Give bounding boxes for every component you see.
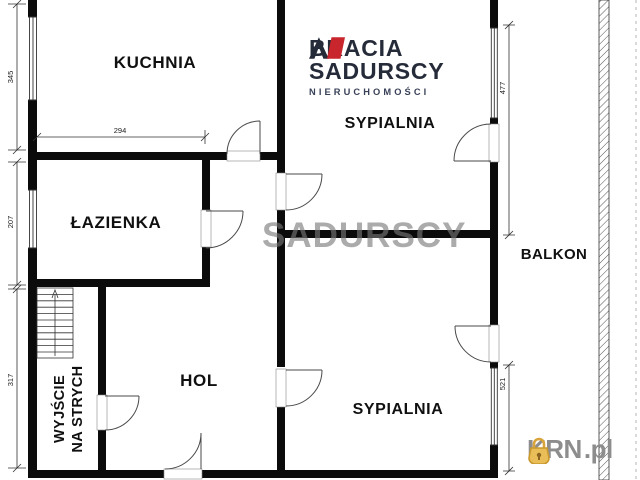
door-bedroom2 [286, 370, 322, 406]
wall-kitchen-bottom [28, 152, 227, 160]
wall-left [28, 0, 37, 17]
door-frame [201, 210, 211, 247]
door-frame [227, 151, 260, 161]
krn-logo: KRN .pl [527, 436, 613, 462]
dimension-label-317: 317 [6, 374, 15, 387]
wall-left [28, 100, 37, 190]
door-frame [97, 395, 107, 430]
agency-logo-line2: SADURSCY [309, 60, 459, 83]
balcony-hatch [599, 0, 609, 480]
dimension-label-207: 207 [6, 216, 15, 229]
room-label-bedroom1: SYPIALNIA [345, 115, 436, 132]
dimension-line-477 [503, 21, 515, 239]
window-bathroom [28, 190, 37, 248]
door-balcony-bedroom2 [455, 326, 491, 362]
room-label-attic-exit-2: NA STRYCH [70, 365, 86, 452]
room-label-hall: HOL [180, 371, 218, 390]
window-bedroom2 [490, 368, 498, 445]
door-frame [276, 369, 286, 407]
wall-central [277, 407, 285, 478]
wall-bathroom-bottom [28, 279, 210, 287]
dimension-label-294: 294 [114, 126, 127, 135]
wall-central [277, 0, 285, 173]
agency-logo: BRACIA SADURSCY NIERUCHOMOŚCI [309, 37, 459, 97]
wall-right [490, 118, 498, 124]
watermark: SADURSCY [262, 218, 502, 253]
wall-attic-room [98, 430, 106, 478]
floor-plan-page: KUCHNIA SYPIALNIA ŁAZIENKA HOL SYPIALNIA… [0, 0, 640, 480]
door-kitchen [227, 121, 260, 154]
wall-right [490, 445, 498, 478]
door-bedroom1 [286, 174, 322, 210]
wall-bathroom-right [202, 160, 210, 210]
agency-logo-mark-icon [309, 37, 345, 59]
room-label-balcony: BALKON [521, 246, 588, 263]
door-frame [164, 469, 202, 479]
dimension-label-521: 521 [498, 378, 507, 391]
wall-bottom [202, 470, 497, 478]
door-entrance [165, 433, 201, 469]
door-frame [276, 173, 286, 210]
door-balcony-bedroom1 [454, 124, 491, 161]
room-label-bathroom: ŁAZIENKA [71, 213, 162, 232]
dimension-label-345: 345 [6, 71, 15, 84]
agency-logo-line3: NIERUCHOMOŚCI [309, 87, 459, 97]
room-label-bedroom2: SYPIALNIA [353, 401, 444, 418]
wall-bottom [28, 470, 165, 478]
door-frame [489, 124, 499, 162]
wall-kitchen-bottom [260, 152, 285, 160]
door-frame [489, 325, 499, 362]
padlock-icon [527, 436, 551, 464]
wall-right [490, 362, 498, 368]
room-label-attic-exit-1: WYJŚCIE [50, 375, 68, 443]
door-frames [97, 124, 499, 479]
dimension-label-477: 477 [498, 82, 507, 95]
door-attic-room [105, 396, 139, 430]
window-bedroom1 [490, 28, 498, 118]
wall-right [490, 0, 498, 28]
krn-logo-tld: .pl [584, 436, 613, 462]
door-bathroom [206, 211, 243, 248]
wall-attic-room [98, 287, 106, 395]
window-kitchen [28, 17, 37, 100]
stairs [37, 288, 73, 358]
room-label-kitchen: KUCHNIA [114, 53, 197, 72]
